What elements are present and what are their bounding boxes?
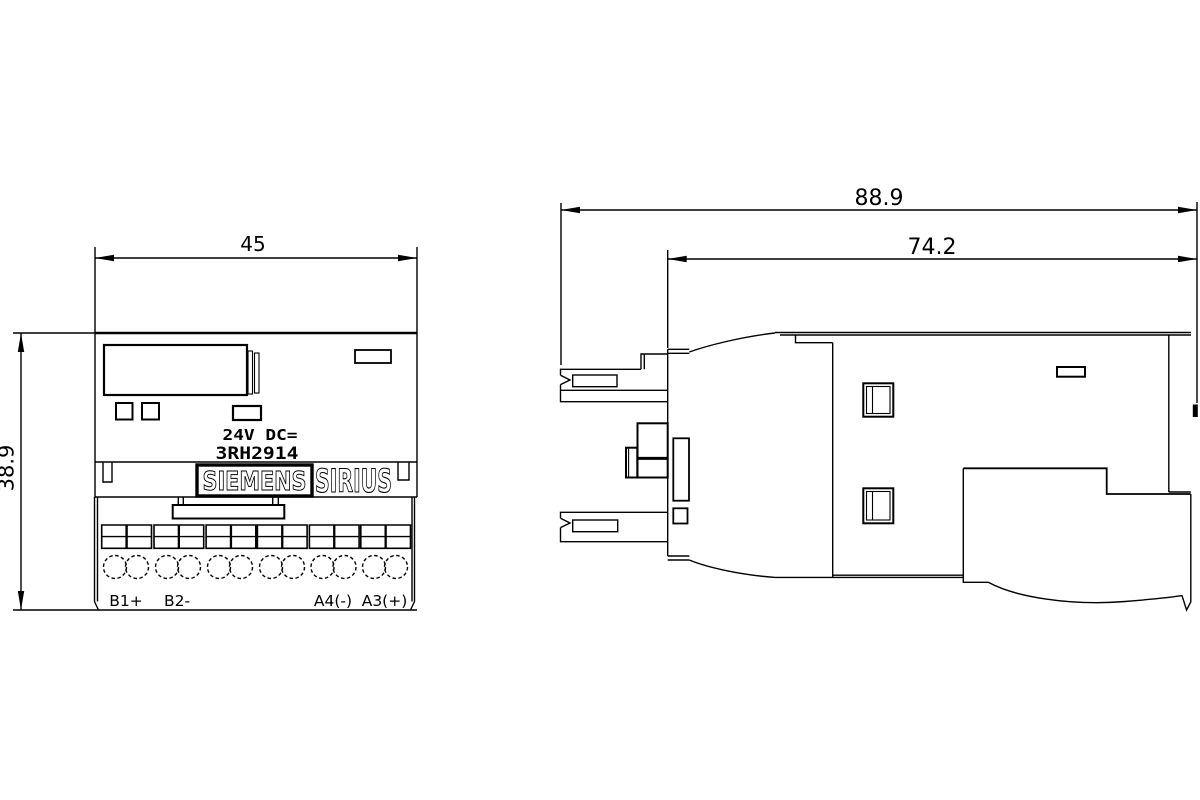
side-coil-connector: [626, 423, 668, 477]
terminal-label-b2: B2-: [164, 592, 190, 610]
side-dim-overall: 88.9: [561, 186, 1197, 403]
technical-drawing-canvas: 45 38.9 24V DC= 3RH2914: [0, 0, 1200, 800]
din-tab-plate: [173, 505, 285, 519]
pin-slot: [573, 520, 618, 532]
front-view: 45 38.9 24V DC= 3RH2914: [0, 232, 417, 610]
top-right-slot: [355, 350, 391, 363]
front-dim-height: 38.9: [0, 333, 95, 610]
connector-left-block: [626, 448, 637, 478]
terminal-hole: [282, 556, 305, 579]
right-clip-detail: [1193, 405, 1198, 418]
arrowhead-left: [668, 256, 687, 262]
terminal-hole: [126, 556, 149, 579]
terminal-holes: [104, 556, 408, 579]
text-product-code: 3RH2914: [216, 444, 299, 464]
side-body: [668, 333, 1198, 611]
front-terminal-block: B1+ B2- A4(-) A3(+): [13, 497, 417, 610]
terminal-label-a3: A3(+): [362, 592, 408, 610]
extension-lines: [561, 202, 1197, 403]
text-voltage: 24V DC=: [223, 426, 298, 444]
terminal-hole: [178, 556, 201, 579]
dimension-drawing-svg: 45 38.9 24V DC= 3RH2914: [0, 0, 1200, 800]
terminal-hole: [260, 556, 283, 579]
connector-block: [638, 423, 668, 477]
bottom-curve: [689, 560, 775, 577]
terminal-hole: [385, 556, 408, 579]
arrowhead-left: [95, 255, 114, 261]
side-window-lower: [863, 488, 893, 523]
mount-notch: [963, 468, 1191, 494]
top-front-tab: [668, 349, 690, 353]
label-window: [104, 345, 247, 395]
dim-value-height: 38.9: [0, 445, 19, 492]
sirius-logo: SIRIUS: [315, 462, 392, 500]
top-step: [796, 335, 833, 343]
terminal-hole: [156, 556, 179, 579]
terminal-label-b1: B1+: [109, 592, 142, 610]
face-slot-tall: [673, 438, 689, 500]
terminal-label-a4: A4(-): [314, 592, 352, 610]
dim-value-body-depth: 74.2: [908, 235, 957, 260]
side-view: 88.9 74.2: [561, 186, 1198, 610]
window-outer: [863, 383, 893, 416]
front-din-tab: [173, 497, 285, 519]
side-pin-bottom: [561, 512, 668, 541]
top-edge-double: [775, 333, 1191, 336]
dim-value-overall-depth: 88.9: [855, 186, 904, 211]
indicator-square-2: [142, 403, 159, 420]
front-dim-width: 45: [95, 232, 417, 333]
terminal-hole: [230, 556, 253, 579]
label-window-bar-1: [248, 351, 253, 394]
arrowhead-down: [18, 591, 24, 610]
face-slot-small: [673, 508, 687, 523]
indicator-square-1: [116, 403, 133, 420]
window-inner: [867, 387, 891, 414]
arrowhead-right: [398, 255, 417, 261]
arrowhead-right: [1178, 256, 1197, 262]
terminal-hole: [104, 556, 127, 579]
front-housing: 24V DC= 3RH2914 SIEMENS SIRIUS: [95, 333, 417, 500]
arrowhead-left: [561, 207, 580, 213]
pin-outline: [561, 512, 668, 541]
window-outer: [863, 488, 893, 523]
label-window-bar-2: [255, 353, 260, 393]
terminal-hole: [333, 556, 356, 579]
terminal-hole: [311, 556, 334, 579]
side-window-upper: [863, 383, 893, 416]
side-dim-body: 74.2: [668, 235, 1197, 348]
top-curve: [689, 333, 775, 352]
contactor-outline: [963, 494, 1191, 610]
din-tab-ticks: [177, 497, 281, 505]
arrowhead-up: [18, 333, 24, 352]
band-notch-left: [103, 462, 112, 482]
pin-slot: [573, 375, 617, 387]
pin-collar: [641, 354, 668, 369]
dc-supply-rect: [233, 406, 261, 420]
extension-line: [95, 247, 417, 333]
band-notch-right: [398, 462, 409, 480]
siemens-logo: SIEMENS: [203, 467, 307, 497]
terminal-hole: [208, 556, 231, 579]
arrowhead-right: [1178, 207, 1197, 213]
marking-slot: [1057, 367, 1085, 377]
terminal-hole: [363, 556, 386, 579]
dim-value-width: 45: [240, 232, 265, 256]
side-pin-top: [561, 354, 668, 402]
bottom-edge-double: [775, 575, 963, 577]
bottom-front-tab: [668, 556, 690, 560]
window-inner: [867, 492, 891, 521]
pin-outline: [561, 369, 668, 401]
